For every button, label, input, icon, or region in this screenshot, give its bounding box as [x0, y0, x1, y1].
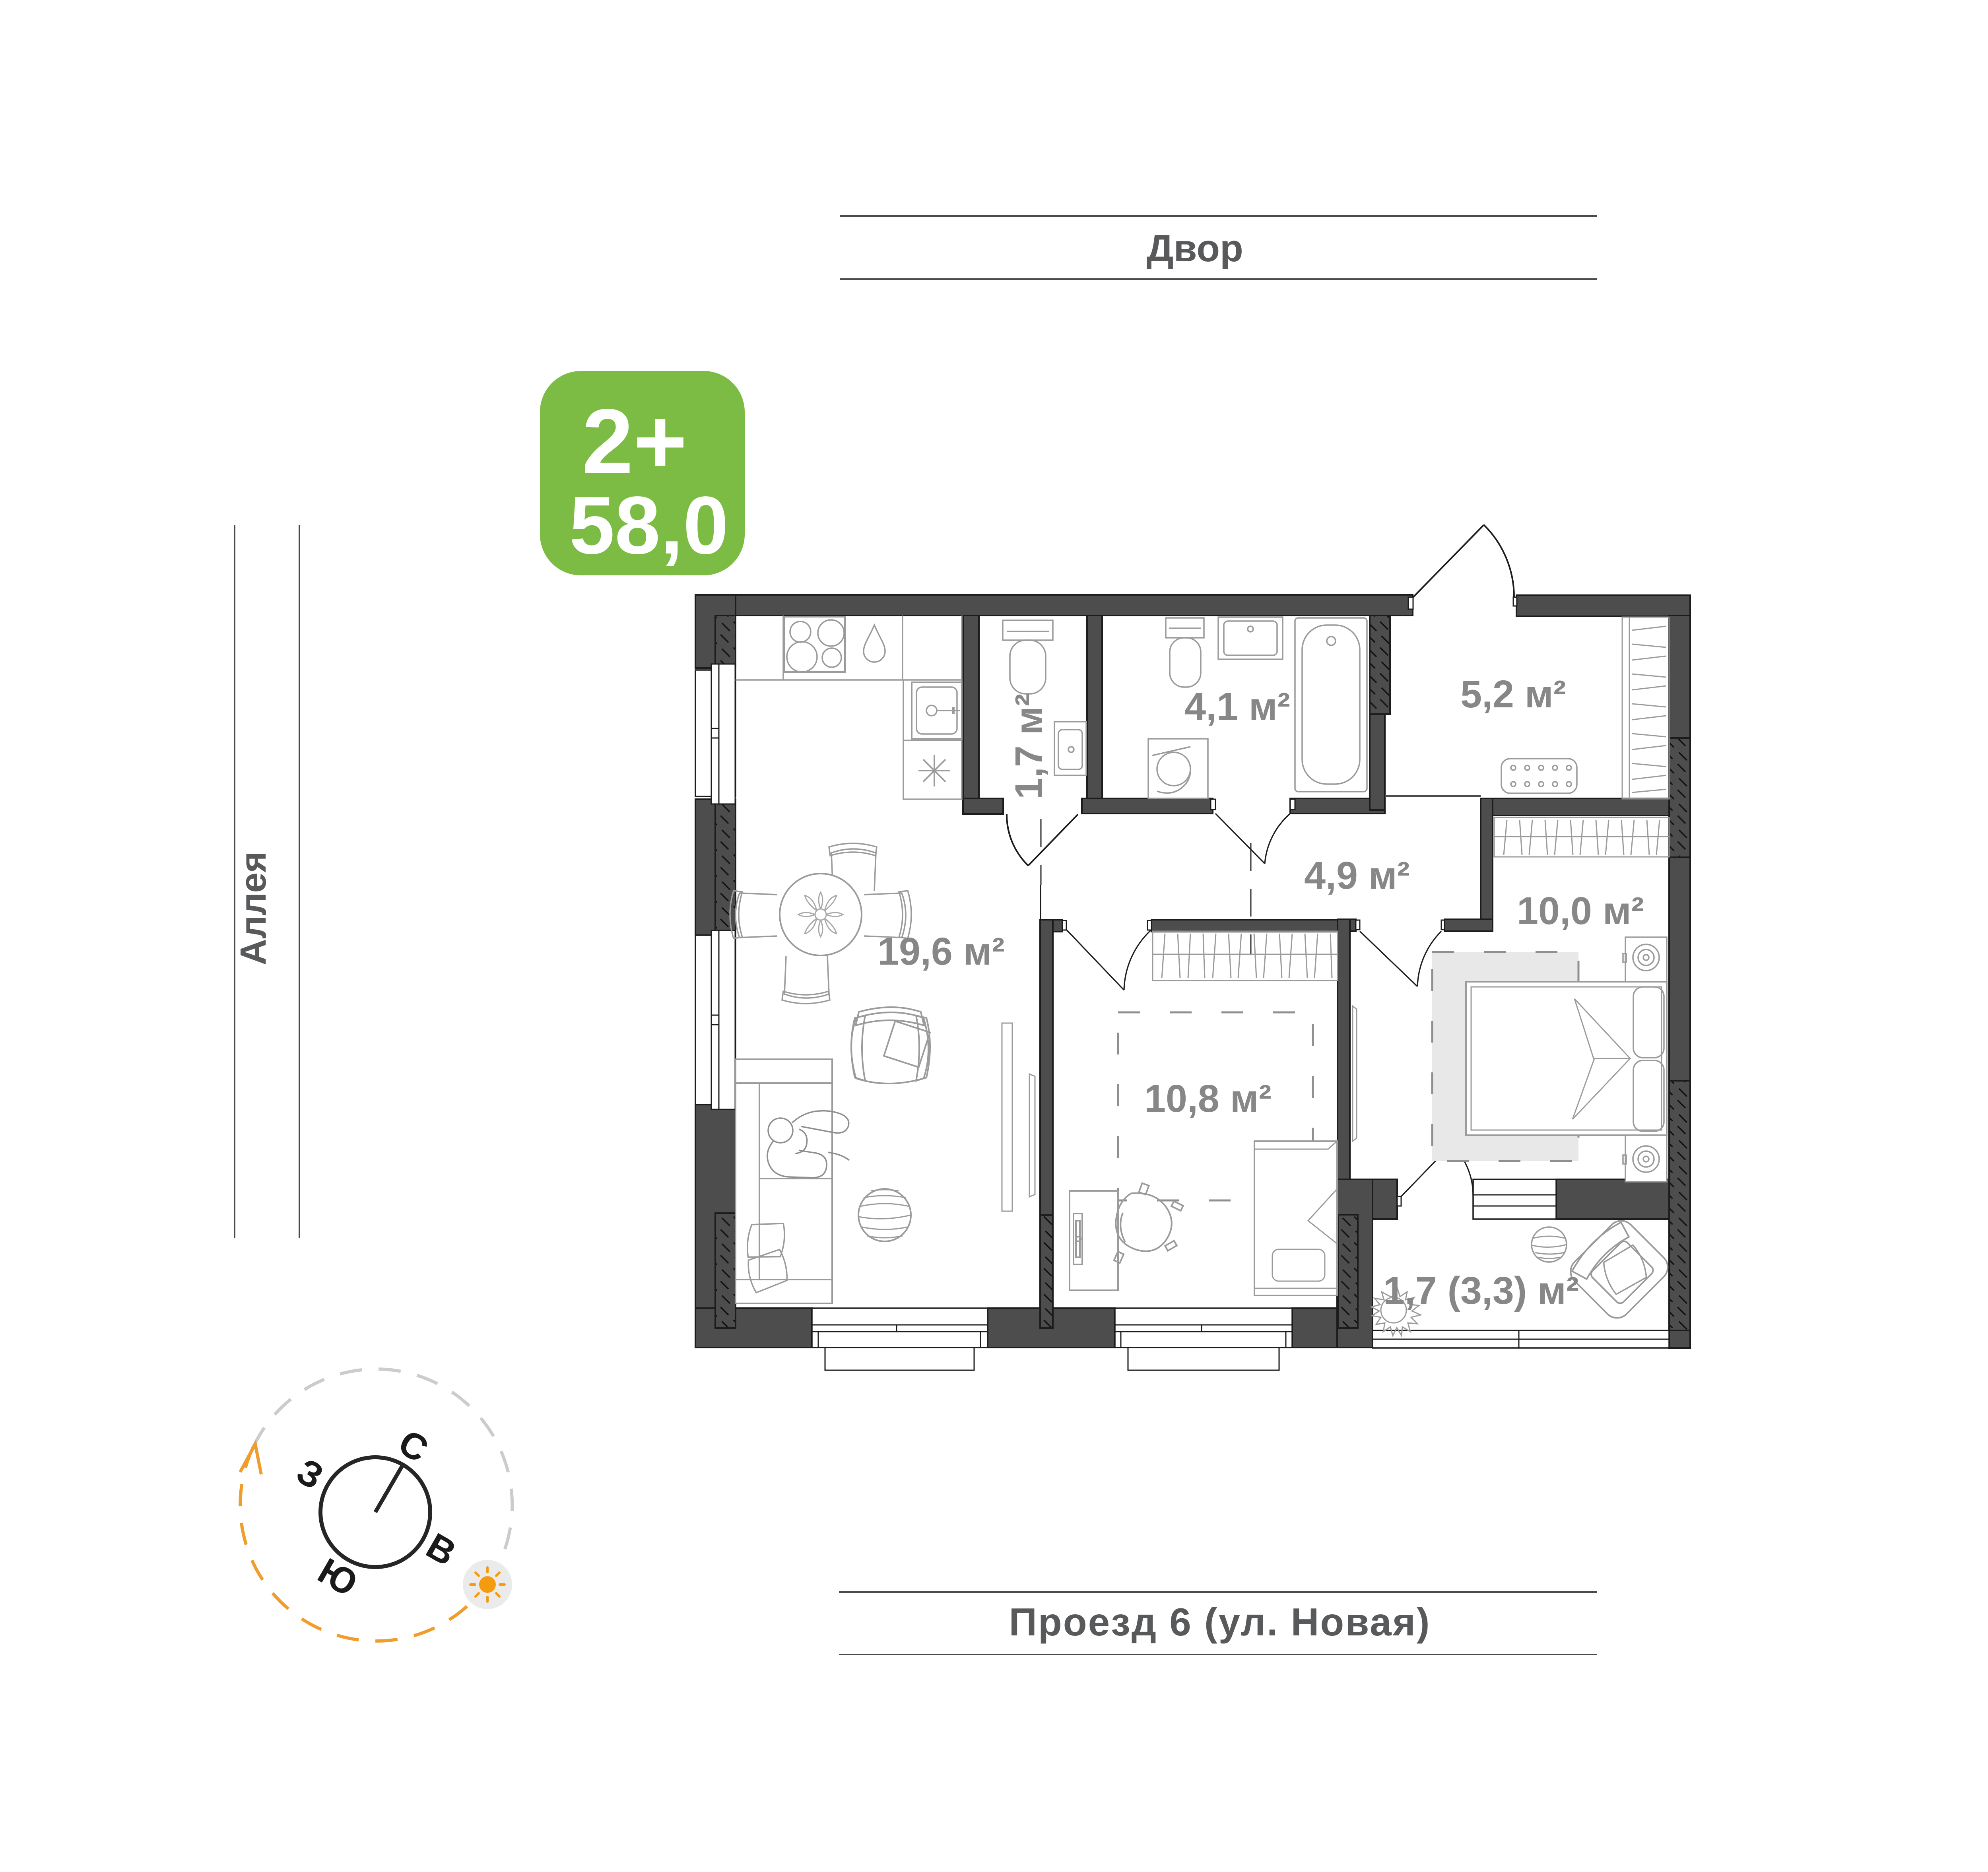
svg-text:Двор: Двор — [1146, 227, 1243, 270]
svg-text:4,9 м²: 4,9 м² — [1304, 854, 1410, 897]
svg-text:19,6 м²: 19,6 м² — [878, 930, 1005, 973]
svg-text:Аллея: Аллея — [233, 851, 274, 965]
svg-text:2+: 2+ — [582, 390, 687, 493]
svg-text:4,1 м²: 4,1 м² — [1184, 685, 1290, 728]
svg-text:10,8 м²: 10,8 м² — [1144, 1077, 1272, 1120]
svg-text:Проезд 6 (ул. Новая): Проезд 6 (ул. Новая) — [1009, 1600, 1431, 1644]
svg-text:1,7 (3,3) м²: 1,7 (3,3) м² — [1383, 1269, 1579, 1312]
svg-text:58,0: 58,0 — [569, 480, 729, 571]
svg-text:1,7 м²: 1,7 м² — [1007, 693, 1050, 799]
svg-text:10,0 м²: 10,0 м² — [1517, 889, 1644, 932]
svg-text:5,2 м²: 5,2 м² — [1460, 672, 1566, 716]
